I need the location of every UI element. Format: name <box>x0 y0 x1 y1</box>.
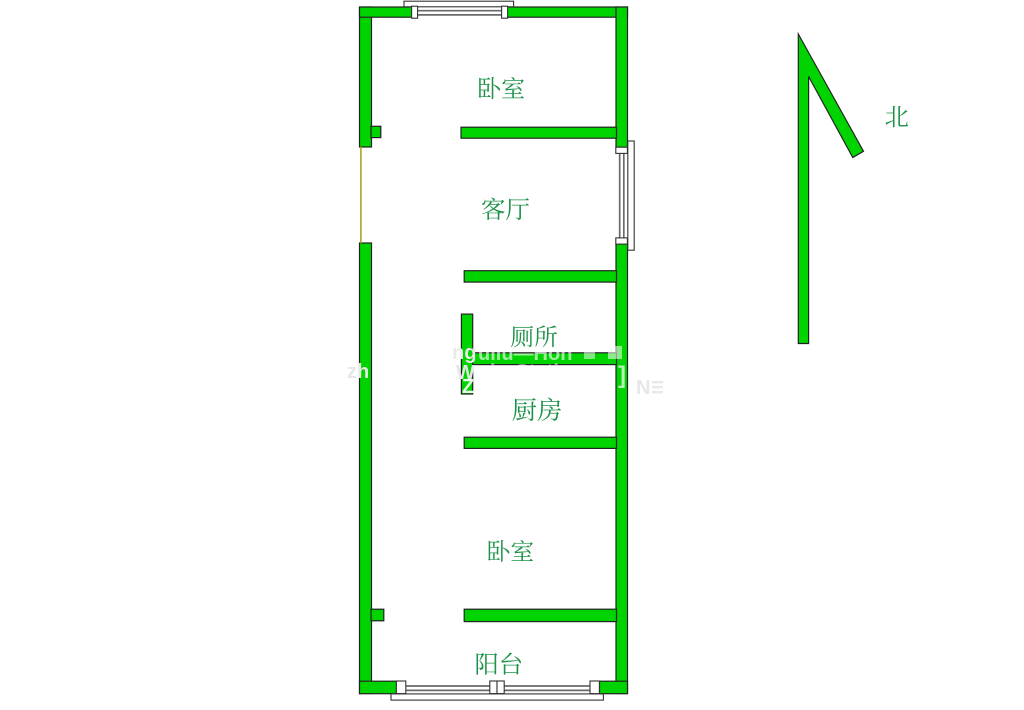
svg-text:zh: zh <box>347 361 369 383</box>
svg-text:ng: ng <box>452 342 476 364</box>
svg-text:]: ] <box>618 362 626 389</box>
svg-text:i—Stati: i—Stati <box>490 361 559 383</box>
svg-text:Z: Z <box>462 376 474 398</box>
svg-text:N: N <box>636 377 650 399</box>
